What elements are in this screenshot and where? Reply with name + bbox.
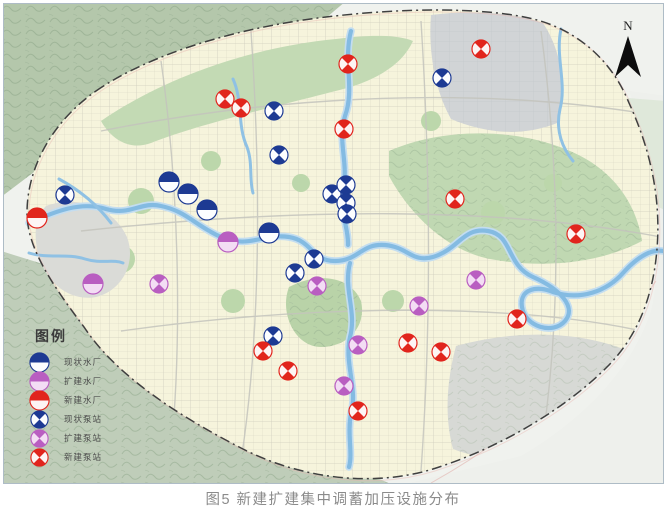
marker-existing-pump	[305, 250, 323, 268]
legend-label: 扩建水厂	[64, 375, 102, 387]
legend-title: 图例	[35, 326, 189, 346]
expanded-pump-icon	[29, 428, 50, 449]
marker-new-plant	[27, 208, 47, 228]
marker-expanded-pump	[349, 336, 367, 354]
legend-label: 现状泵站	[64, 413, 102, 425]
marker-new-pump	[446, 190, 464, 208]
north-label: N	[608, 18, 648, 34]
north-arrow: N	[608, 18, 648, 80]
expanded-plant-icon	[29, 371, 50, 392]
marker-expanded-plant	[218, 232, 238, 252]
marker-new-pump	[339, 55, 357, 73]
legend-item-existing-plant: 现状水厂	[29, 354, 189, 370]
marker-existing-pump	[433, 69, 451, 87]
existing-pump-icon	[29, 409, 50, 430]
new-pump-icon	[29, 447, 50, 468]
figure-page: N 图例 现状水厂 扩建水厂 新建水厂 现状泵站	[0, 0, 666, 516]
marker-existing-pump	[56, 186, 74, 204]
legend-item-existing-pump: 现状泵站	[29, 411, 189, 427]
marker-new-pump	[216, 90, 234, 108]
marker-new-pump	[432, 343, 450, 361]
marker-existing-pump	[338, 205, 356, 223]
legend-item-new-plant: 新建水厂	[29, 392, 189, 408]
marker-existing-pump	[337, 176, 355, 194]
existing-plant-icon	[29, 352, 50, 373]
planning-map: N 图例 现状水厂 扩建水厂 新建水厂 现状泵站	[3, 3, 664, 484]
marker-expanded-pump	[150, 275, 168, 293]
marker-new-pump	[279, 362, 297, 380]
figure-caption: 图5 新建扩建集中调蓄加压设施分布	[0, 488, 666, 509]
marker-new-pump	[567, 225, 585, 243]
marker-existing-plant	[259, 223, 279, 243]
marker-existing-plant	[197, 200, 217, 220]
marker-existing-pump	[286, 264, 304, 282]
marker-existing-plant	[159, 172, 179, 192]
marker-existing-plant	[178, 184, 198, 204]
marker-new-pump	[232, 99, 250, 117]
new-plant-icon	[29, 390, 50, 411]
legend-item-expanded-plant: 扩建水厂	[29, 373, 189, 389]
legend-item-new-pump: 新建泵站	[29, 449, 189, 465]
marker-expanded-pump	[410, 297, 428, 315]
legend-label: 现状水厂	[64, 356, 102, 368]
marker-new-pump	[508, 310, 526, 328]
marker-new-pump	[349, 402, 367, 420]
marker-new-pump	[254, 342, 272, 360]
legend-item-expanded-pump: 扩建泵站	[29, 430, 189, 446]
legend-label: 新建泵站	[64, 451, 102, 463]
marker-new-pump	[472, 40, 490, 58]
marker-existing-pump	[265, 102, 283, 120]
marker-expanded-pump	[335, 377, 353, 395]
legend-label: 新建水厂	[64, 394, 102, 406]
legend-label: 扩建泵站	[64, 432, 102, 444]
marker-new-pump	[399, 334, 417, 352]
marker-expanded-pump	[308, 277, 326, 295]
marker-existing-pump	[270, 146, 288, 164]
legend: 图例 现状水厂 扩建水厂 新建水厂 现状泵站 扩建泵站	[29, 326, 189, 468]
north-arrow-icon	[613, 34, 643, 78]
marker-expanded-plant	[83, 274, 103, 294]
marker-expanded-pump	[467, 271, 485, 289]
marker-new-pump	[335, 120, 353, 138]
